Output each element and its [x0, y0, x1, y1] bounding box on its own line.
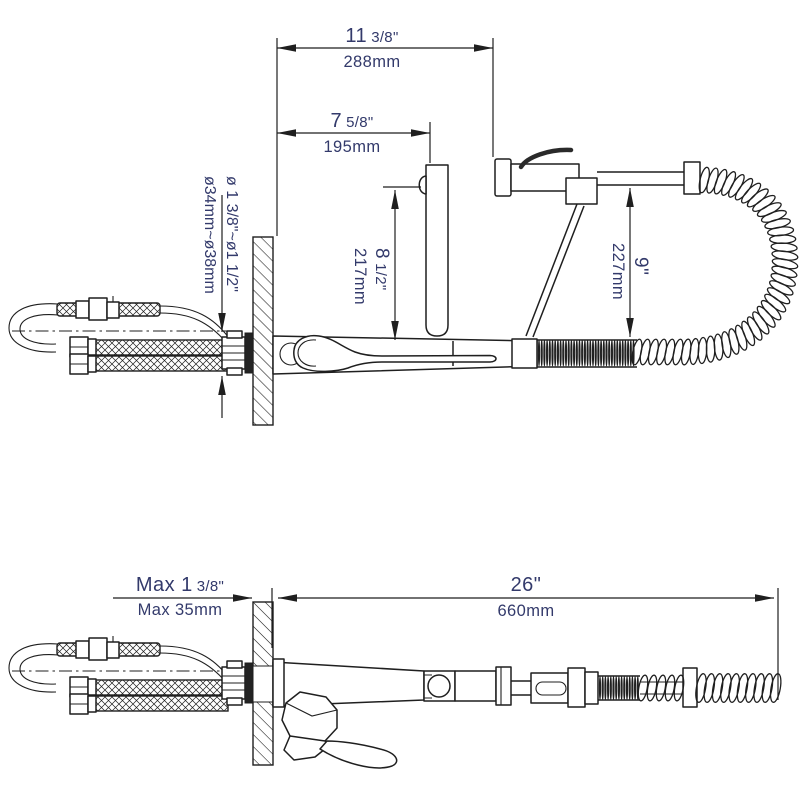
coil-loop: [557, 340, 558, 366]
coil-loop: [538, 340, 539, 366]
coil-loop: [563, 340, 564, 366]
ribbed-hose-section-plan: [598, 676, 640, 700]
coil-loop: [587, 340, 588, 366]
dim-label-mm: 195mm: [323, 138, 380, 156]
coil-loop: [560, 340, 561, 366]
dim-label-inches: ø 1 3/8"~ø1 1/2": [223, 176, 240, 292]
coil-loop: [630, 340, 631, 366]
coil-loop: [705, 167, 721, 194]
spray-head-side: [495, 150, 700, 337]
coil-loop: [608, 677, 609, 700]
coil-loop: [706, 336, 715, 362]
end-coupler: [496, 667, 511, 705]
hose-connector: [684, 162, 700, 194]
hose-collar: [512, 339, 537, 368]
coil-loop: [574, 340, 575, 366]
coil-loop: [655, 338, 669, 365]
coil-loop: [727, 673, 741, 703]
coil-loop: [613, 677, 614, 700]
wall-cross-section: [253, 237, 273, 425]
support-rod-left: [526, 204, 577, 336]
coil-loop: [605, 677, 606, 700]
spout-column: [419, 165, 448, 336]
dim-label-mm: Max 35mm: [138, 601, 223, 619]
support-rod-right: [533, 206, 584, 337]
coil-loop: [630, 338, 644, 365]
coil-loop: [735, 673, 749, 703]
coil-loop: [595, 340, 596, 366]
coil-loop: [619, 340, 620, 366]
dim-label-mm: 217mm: [351, 248, 369, 305]
coil-loop: [618, 677, 619, 700]
coiled-spring-hose-side: [630, 166, 798, 365]
dim-label-inches: Max 13/8": [136, 574, 224, 596]
coil-loop: [555, 340, 556, 366]
coil-loop: [565, 340, 566, 366]
dim-label-inches: 75/8": [330, 110, 373, 132]
coil-loop: [616, 677, 617, 700]
spout-outline: [426, 165, 448, 336]
dim-label-mm: ø34mm~ø38mm: [201, 176, 218, 294]
mounting-hardware: [222, 661, 253, 705]
dim-label-mm: 288mm: [343, 53, 400, 71]
coil-loop: [592, 340, 593, 366]
dim-spray-height: 9" 227mm: [609, 188, 651, 337]
wall-escutcheon: [273, 659, 284, 707]
plan-view-drawing: Max 13/8" Max 35mm 26" 660mm: [9, 574, 783, 768]
coil-loop: [617, 340, 618, 366]
coil-loop: [614, 340, 615, 366]
side-view-drawing: 113/8" 288mm 75/8" 195mm 81/2" 217mm 9" …: [9, 25, 799, 425]
coil-loop: [770, 271, 797, 289]
coil-loop: [638, 338, 652, 365]
coil-loop: [752, 673, 766, 703]
supply-hose-assembly: [9, 296, 232, 374]
faucet-dimension-diagram: 113/8" 288mm 75/8" 195mm 81/2" 217mm 9" …: [0, 0, 800, 800]
dim-spout-reach: 75/8" 195mm: [277, 110, 430, 163]
dim-label-inches: 9": [630, 257, 651, 275]
coil-loop: [632, 677, 633, 700]
coil-loop: [702, 673, 716, 703]
coil-loop: [760, 673, 774, 703]
coil-loop: [547, 340, 548, 366]
dim-hole-diameter: ø 1 3/8"~ø1 1/2" ø34mm~ø38mm: [201, 176, 240, 418]
wall-penetration: [253, 666, 273, 702]
coil-loop: [727, 328, 741, 355]
coil-loop: [769, 673, 783, 703]
coil-loop: [663, 338, 677, 365]
spray-head-bracket: [566, 178, 597, 204]
coil-loop: [568, 340, 569, 366]
coil-loop: [606, 340, 607, 366]
dim-spout-height: 81/2" 217mm: [351, 187, 421, 340]
coil-loop: [590, 340, 591, 366]
joint-circle: [428, 675, 450, 697]
coil-loop: [598, 340, 599, 366]
coil-loop: [744, 673, 758, 703]
coil-loop: [647, 338, 661, 365]
coil-loop: [576, 340, 577, 366]
dim-label-inches: 113/8": [345, 25, 398, 47]
coil-loop: [602, 677, 603, 700]
coil-collar: [683, 668, 697, 707]
coil-loop: [629, 677, 630, 700]
spray-step: [585, 672, 598, 704]
dim-label-inches: 26": [511, 574, 542, 596]
coil-loop: [733, 324, 749, 351]
spray-flange: [568, 668, 585, 707]
dim-label-mm: 660mm: [497, 602, 554, 620]
coil-loop: [609, 340, 610, 366]
coil-loop: [601, 340, 602, 366]
coil-loop: [635, 677, 636, 700]
coil-loop: [582, 340, 583, 366]
dim-label-mm: 227mm: [609, 243, 627, 300]
supply-hose-assembly: [9, 636, 232, 714]
coil-guide: [637, 180, 785, 352]
coil-loop: [603, 340, 604, 366]
coil-loop: [671, 338, 685, 365]
coiled-spring-hose-plan: [637, 668, 783, 707]
body-segment: [455, 671, 496, 701]
coil-loop: [611, 340, 612, 366]
coil-loop: [624, 677, 625, 700]
coil-loop: [584, 340, 585, 366]
coil-loop: [719, 673, 733, 703]
coil-loop: [544, 340, 545, 366]
coil-loop: [771, 257, 798, 271]
coil-loop: [771, 264, 798, 280]
handle-lever-loop: [320, 741, 397, 768]
mounting-hardware: [222, 331, 253, 375]
coil-loop: [711, 673, 725, 703]
dim-label-inches: 81/2": [371, 248, 392, 290]
coil-loop: [599, 677, 600, 700]
ribbed-hose-section-side: [537, 340, 637, 367]
coil-loop: [610, 677, 611, 700]
technical-drawing-page: 113/8" 288mm 75/8" 195mm 81/2" 217mm 9" …: [0, 0, 800, 800]
coil-loop: [628, 340, 629, 366]
coil-loop: [549, 340, 550, 366]
coil-loop: [626, 677, 627, 700]
coil-loop: [625, 340, 626, 366]
coil-loop: [571, 340, 572, 366]
spray-head-plan: [531, 668, 598, 707]
spray-nozzle-flange: [495, 159, 511, 196]
dim-wall-thickness: Max 13/8" Max 35mm: [113, 574, 252, 619]
coil-loop: [622, 340, 623, 366]
coil-loop: [541, 340, 542, 366]
coil-loop: [552, 340, 553, 366]
spout-outlet-knob: [419, 176, 426, 194]
coil-loop: [621, 677, 622, 700]
coil-loop: [712, 168, 729, 195]
coil-loop: [579, 340, 580, 366]
dim-top-width: 113/8" 288mm: [277, 25, 493, 236]
